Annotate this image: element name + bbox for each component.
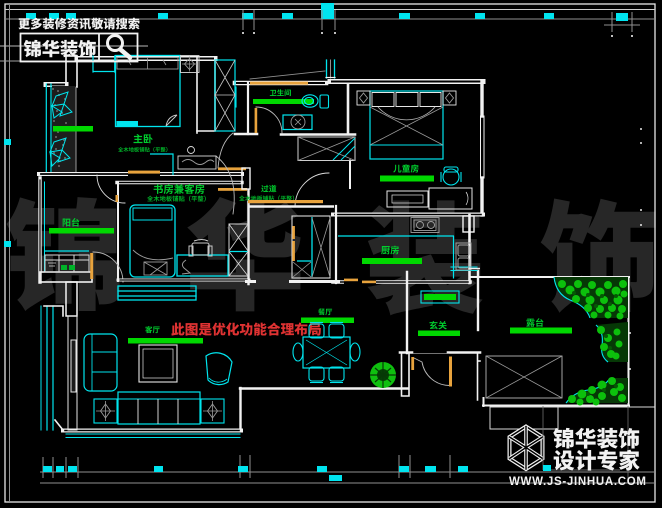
svg-text:WWW.JS-JINHUA.COM: WWW.JS-JINHUA.COM (509, 476, 646, 488)
